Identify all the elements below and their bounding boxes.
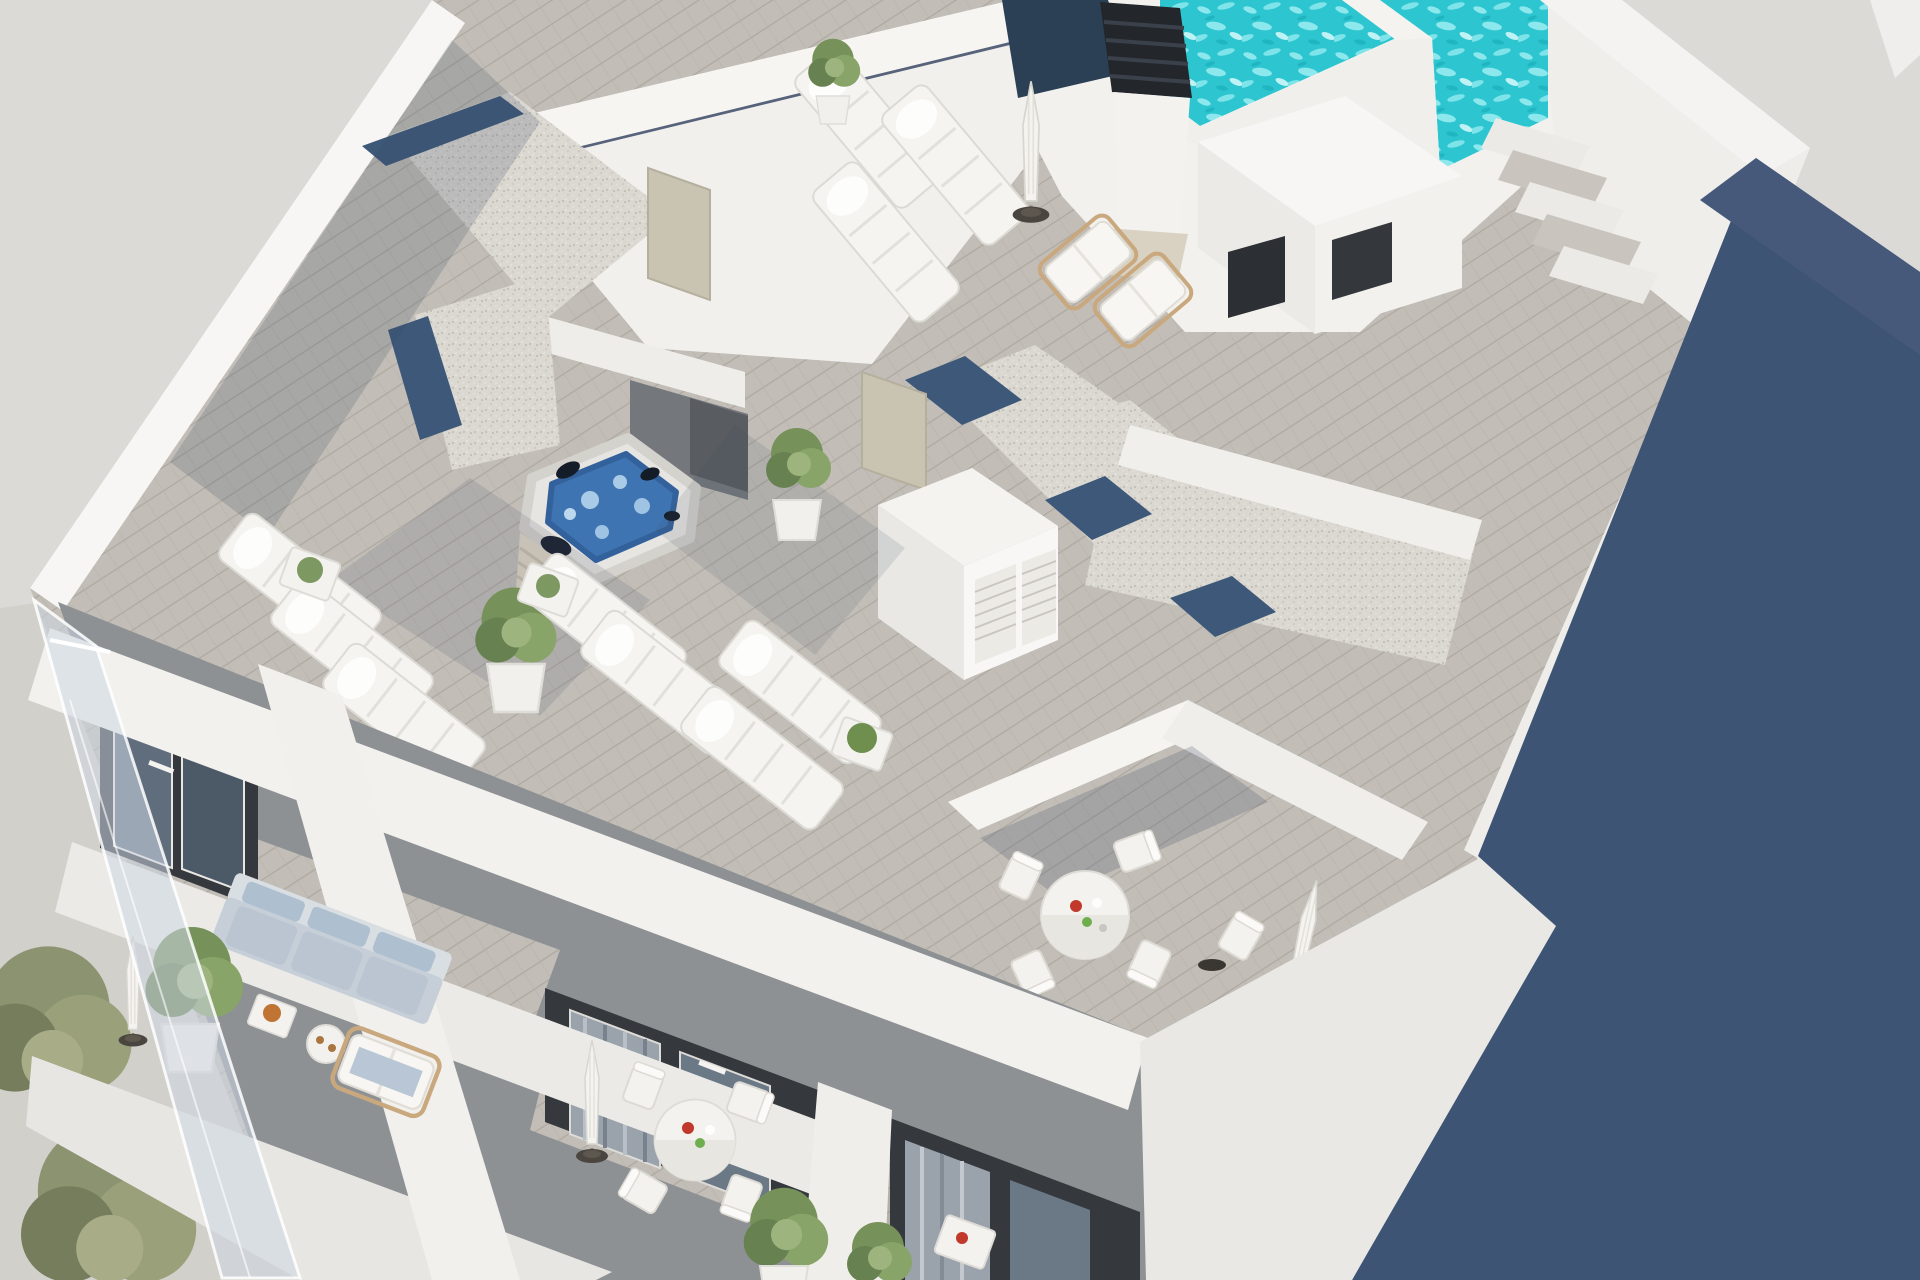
table-plant bbox=[297, 557, 323, 583]
roof-access-door bbox=[648, 168, 710, 300]
planter bbox=[487, 664, 545, 712]
planter bbox=[816, 96, 850, 124]
louver-shutter-panel bbox=[1022, 549, 1056, 646]
table-plant bbox=[536, 574, 560, 598]
planter bbox=[773, 500, 821, 540]
chimney-stack bbox=[1114, 92, 1190, 236]
tableware-green bbox=[1082, 917, 1092, 927]
table-plant bbox=[847, 723, 877, 753]
dining-table-round bbox=[1041, 871, 1129, 959]
planter bbox=[760, 1266, 808, 1280]
tableware bbox=[1099, 924, 1107, 932]
louver-shutter-panel bbox=[975, 564, 1016, 664]
tableware-red bbox=[1070, 900, 1082, 912]
fruit-bowl bbox=[263, 1004, 281, 1022]
architectural-render bbox=[0, 0, 1920, 1280]
umbrella-base bbox=[1198, 959, 1226, 971]
roof-access-door bbox=[862, 372, 926, 490]
dining-table-round bbox=[655, 1100, 736, 1181]
tableware bbox=[1092, 898, 1102, 908]
